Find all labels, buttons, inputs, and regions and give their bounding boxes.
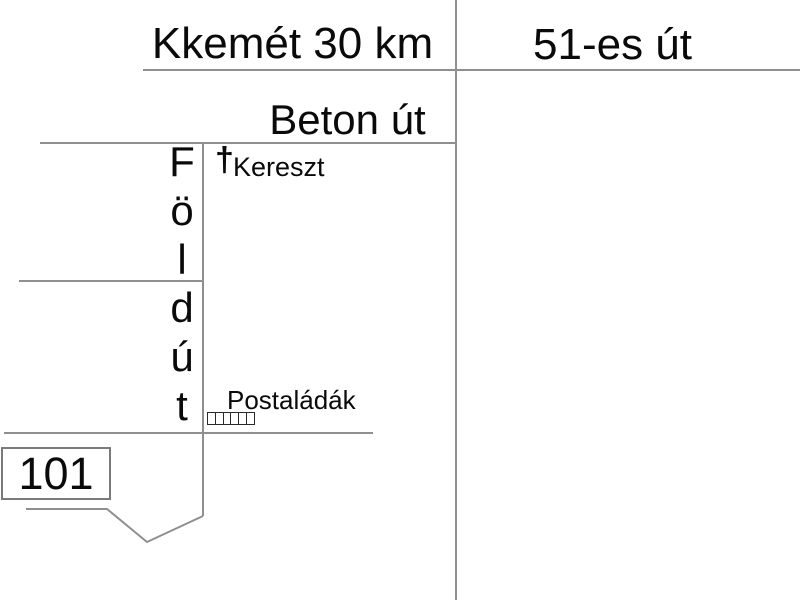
mailbox-cell bbox=[208, 413, 216, 424]
mailbox-cell bbox=[224, 413, 232, 424]
mailbox-cell bbox=[239, 413, 247, 424]
dirt-road-letter: ö bbox=[170, 190, 193, 232]
property-outline-polyline bbox=[26, 509, 203, 542]
road-lines-layer bbox=[0, 0, 800, 600]
mailbox-cell bbox=[216, 413, 224, 424]
mailbox-cell bbox=[231, 413, 239, 424]
dirt-road-letter: ú bbox=[170, 336, 193, 378]
mailbox-row-icon bbox=[207, 412, 255, 425]
mailbox-cell bbox=[247, 413, 254, 424]
mailboxes-label: Postaládák bbox=[227, 387, 356, 413]
cross-label: Kereszt bbox=[233, 154, 325, 181]
dirt-road-letter: d bbox=[170, 287, 193, 329]
dirt-road-letter: l bbox=[177, 239, 186, 281]
route-sketch-map: Kkemét 30 km 51-es út Beton út F ö l d ú… bbox=[0, 0, 800, 600]
road-51-label: 51-es út bbox=[495, 23, 730, 67]
house-number: 101 bbox=[18, 451, 93, 496]
dirt-road-letter: F bbox=[169, 141, 195, 183]
destination-label: Kkemét 30 km bbox=[145, 22, 440, 66]
dirt-road-label: F ö l d ú t bbox=[152, 141, 212, 427]
house-number-box: 101 bbox=[1, 447, 111, 500]
cross-icon: † bbox=[215, 143, 234, 177]
dirt-road-letter: t bbox=[176, 385, 188, 427]
concrete-road-label: Beton út bbox=[250, 99, 445, 141]
